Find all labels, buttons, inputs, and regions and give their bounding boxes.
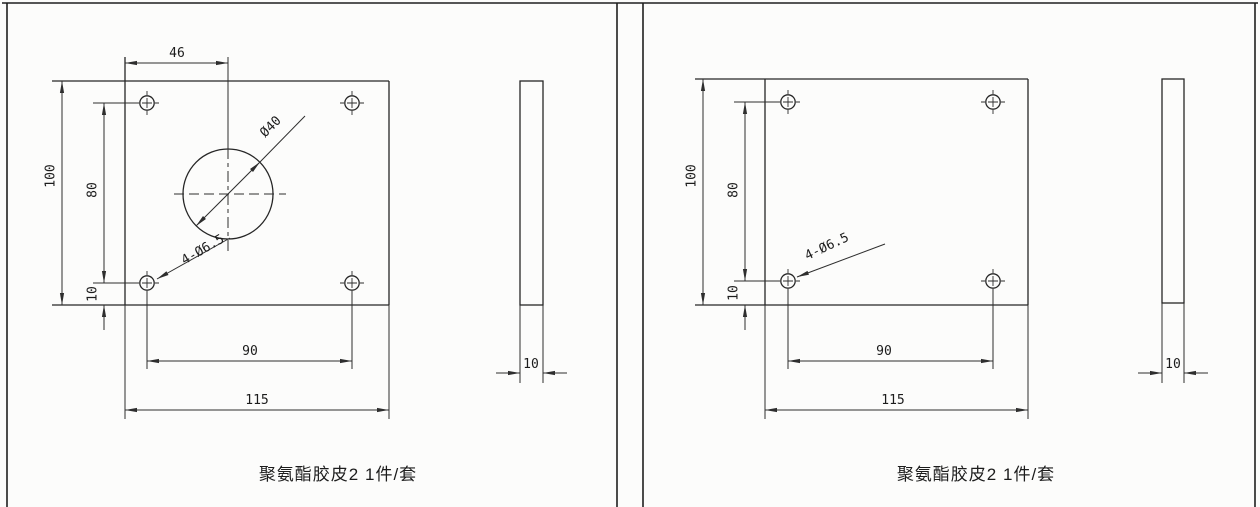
drawing-page: Ø40 46 100 80 10 90 115 4 [0, 0, 1260, 507]
dim-label-10-margin: 10 [727, 285, 742, 301]
dim-label-80: 80 [727, 182, 742, 198]
dim-label-thickness: 10 [1165, 357, 1181, 372]
dim-label-100: 100 [44, 164, 59, 187]
side-view: 10 [1138, 79, 1208, 383]
dim-label-90: 90 [876, 344, 892, 359]
corner-hole-top-right [340, 91, 364, 115]
sheet-left: Ø40 46 100 80 10 90 115 4 [44, 46, 568, 484]
dim-label-10-margin: 10 [86, 286, 101, 302]
dim-label-corner-holes: 4-Ø6.5 [179, 232, 227, 268]
dim-label-80: 80 [86, 182, 101, 198]
dim-label-center-hole: Ø40 [257, 113, 284, 140]
sheet-caption: 聚氨酯胶皮2 1件/套 [897, 465, 1055, 484]
side-view-outline [520, 81, 543, 305]
dim-label-corner-holes: 4-Ø6.5 [803, 230, 852, 263]
dim-label-115: 115 [881, 393, 904, 408]
corner-hole-top-right [981, 90, 1005, 114]
dim-label-90: 90 [242, 344, 258, 359]
sheet-caption: 聚氨酯胶皮2 1件/套 [259, 465, 417, 484]
side-view-outline [1162, 79, 1184, 303]
dim-label-100: 100 [685, 164, 700, 187]
side-view: 10 [496, 81, 567, 383]
dim-label-115: 115 [245, 393, 268, 408]
front-view: Ø40 46 100 80 10 90 115 4 [44, 46, 390, 419]
sheet-right: 100 80 10 90 115 4-Ø6.5 [685, 79, 1209, 484]
dim-label-thickness: 10 [523, 357, 539, 372]
front-view: 100 80 10 90 115 4-Ø6.5 [685, 79, 1029, 419]
dim-label-46: 46 [169, 46, 185, 61]
drawing-canvas: Ø40 46 100 80 10 90 115 4 [0, 0, 1260, 507]
